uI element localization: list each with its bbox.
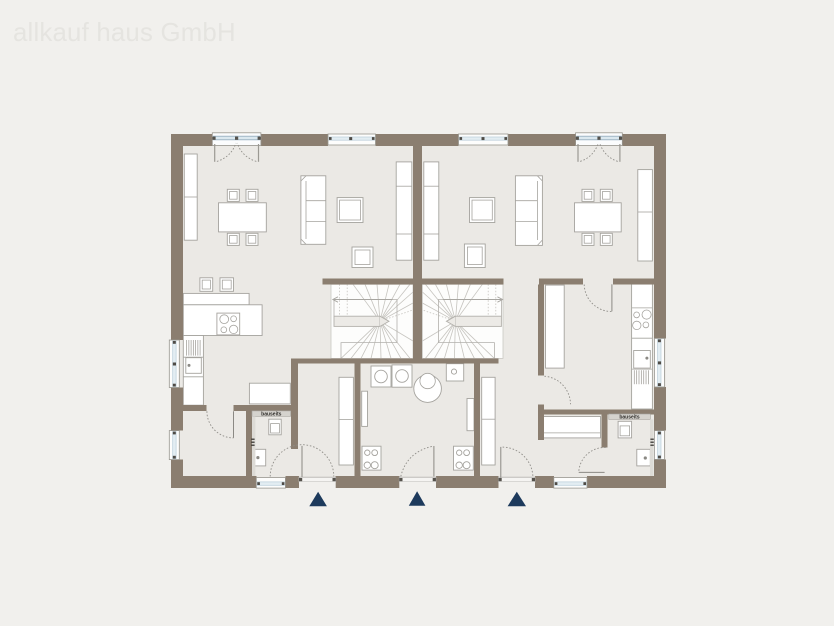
svg-text:bauseits: bauseits xyxy=(619,414,640,420)
svg-text:allkauf haus GmbH: allkauf haus GmbH xyxy=(13,19,236,47)
svg-text:bauseits: bauseits xyxy=(261,411,282,417)
